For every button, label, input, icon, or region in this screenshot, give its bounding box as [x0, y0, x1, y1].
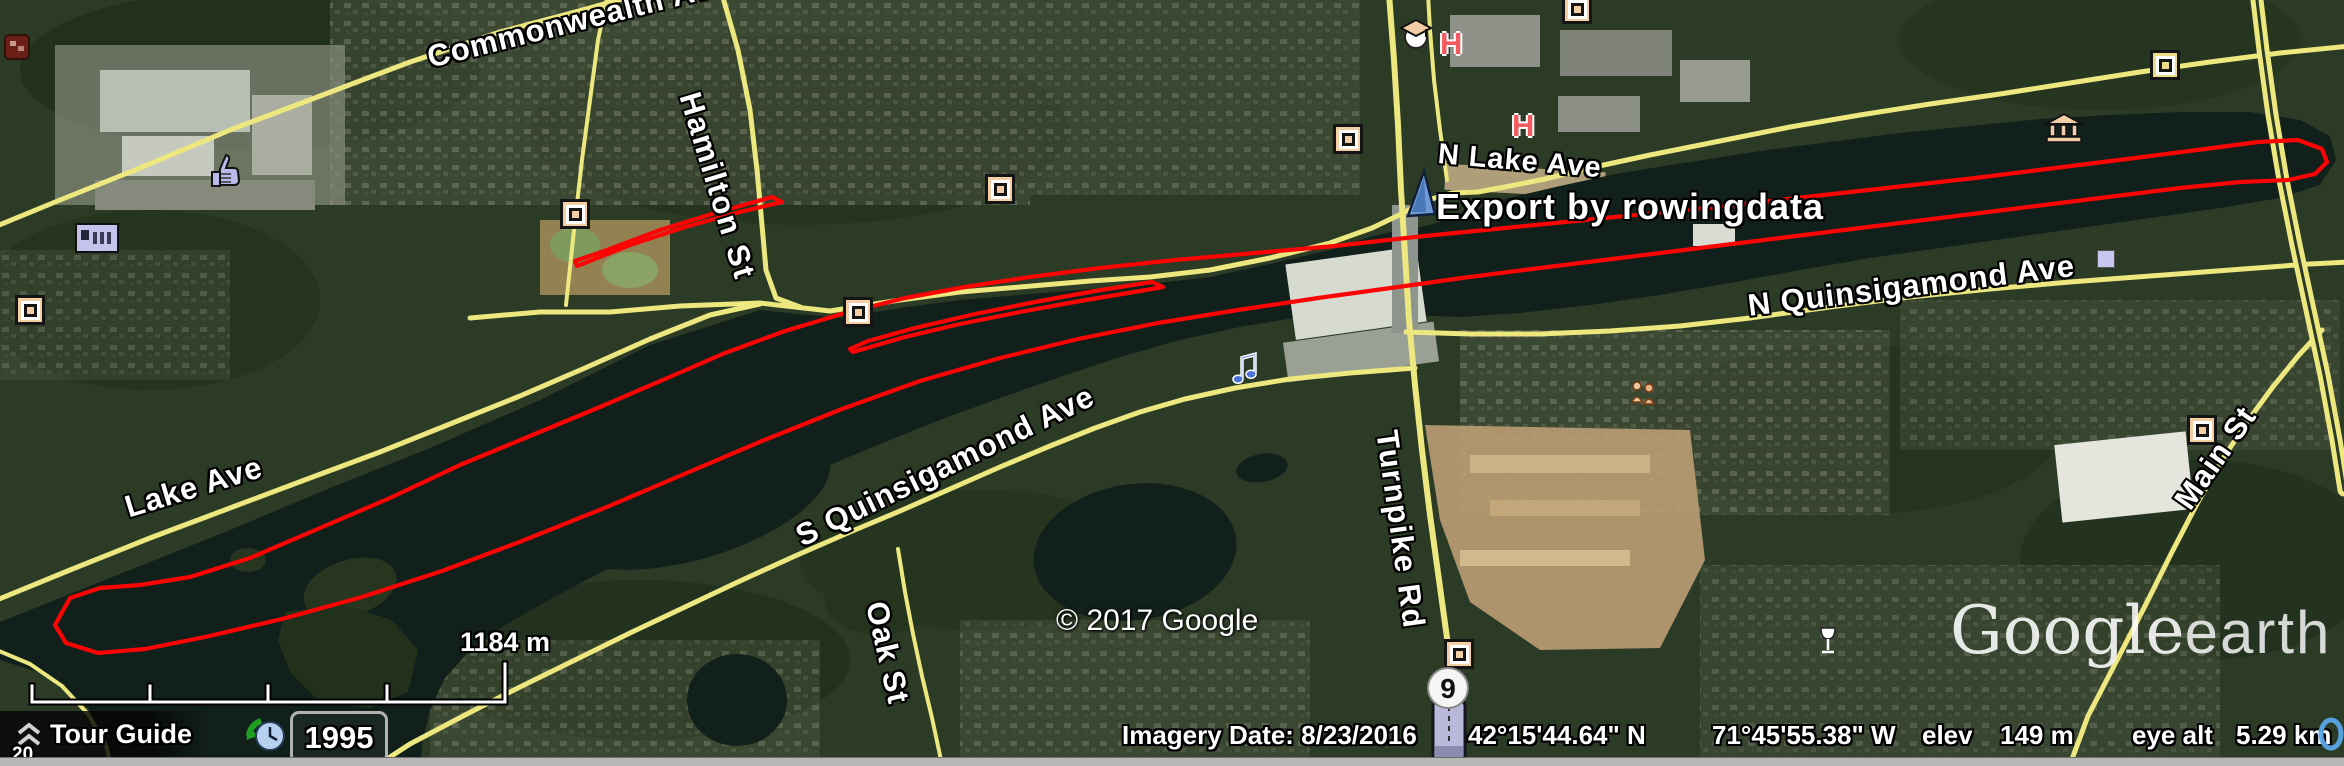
elevation-readout: 149 m [2000, 720, 2074, 751]
shield-inner [2159, 59, 2172, 72]
shield-icon[interactable] [2150, 50, 2180, 80]
photo-square-inner [569, 208, 582, 221]
bottom-window-edge [0, 757, 2344, 766]
photo-square-inner [1453, 648, 1466, 661]
elev-label: elev [1922, 720, 1973, 751]
photo-square-icon[interactable] [1333, 124, 1363, 154]
latitude-readout: 42°15'44.64" N [1468, 720, 1646, 751]
map-copyright: © 2017 Google [1056, 604, 1258, 638]
people-icon[interactable] [1628, 380, 1658, 406]
hospital-icon[interactable]: H [1440, 26, 1462, 62]
imagery-date: Imagery Date: 8/23/2016 [1122, 720, 1417, 751]
photo-square-inner [1342, 133, 1355, 146]
sign-placard-icon[interactable] [74, 222, 120, 256]
photo-square-icon[interactable] [560, 199, 590, 229]
wine-glass-icon[interactable] [1818, 626, 1838, 656]
watermark-earth: earth [2185, 599, 2332, 666]
small-square-icon[interactable] [2097, 250, 2115, 268]
google-earth-map-canvas[interactable]: H H 9 Export by rowingdata Commonwealth … [0, 0, 2344, 766]
tour-guide-label[interactable]: Tour Guide [50, 719, 192, 750]
photo-square-inner [994, 183, 1007, 196]
museum-icon[interactable] [2044, 112, 2084, 144]
history-clock-icon[interactable] [244, 714, 288, 758]
track-title-label[interactable]: Export by rowingdata [1436, 186, 1824, 228]
svg-text:9: 9 [1440, 673, 1456, 704]
placemark-sail-icon[interactable] [1400, 166, 1440, 220]
longitude-readout: 71°45'55.38" W [1712, 720, 1896, 751]
watermark-google: Google [1950, 592, 2185, 669]
photo-square-icon[interactable] [15, 295, 45, 325]
photo-square-icon[interactable] [1562, 0, 1592, 24]
photo-square-inner [1571, 3, 1584, 16]
photo-square-icon[interactable] [843, 297, 873, 327]
photo-square-icon[interactable] [985, 174, 1015, 204]
music-note-icon[interactable] [1232, 352, 1260, 384]
thumbs-up-icon[interactable] [208, 152, 248, 192]
photo-square-inner [2196, 424, 2209, 437]
building-icon[interactable] [4, 34, 30, 60]
graduation-cap-icon[interactable] [1398, 16, 1434, 52]
hospital-icon[interactable]: H [1512, 108, 1534, 144]
scale-label: 1184 m [460, 627, 550, 658]
eye-alt-label: eye alt [2132, 720, 2213, 751]
route-9-shield-icon[interactable]: 9 [1424, 664, 1472, 712]
photo-square-inner [24, 304, 37, 317]
streaming-indicator-icon [2316, 714, 2344, 754]
google-earth-watermark: Googleearth [1950, 592, 2331, 669]
year-label: 1995 [305, 720, 374, 756]
photo-square-inner [852, 306, 865, 319]
